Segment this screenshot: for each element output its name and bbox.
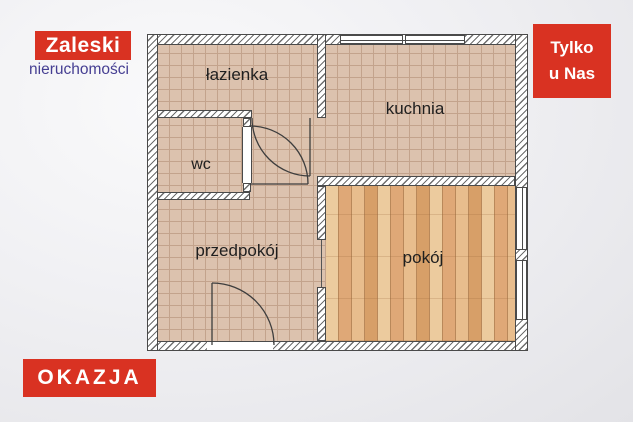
window-mullion [402, 35, 406, 44]
wall-przedpokoj-pokoj-upper [317, 186, 326, 240]
listing-graphic: Zaleski nieruchomości Tylko u Nas OKAZJA [0, 0, 633, 422]
room-label-przedpokoj: przedpokój [195, 241, 278, 261]
floor-plan: łazienka wc kuchnia przedpokój pokój [147, 34, 528, 351]
agency-logo: Zaleski [35, 31, 131, 60]
exclusive-badge-line2: u Nas [549, 61, 595, 87]
exclusive-badge: Tylko u Nas [533, 24, 611, 98]
wall-outer-top [147, 34, 528, 45]
wall-kuchnia-pokoj-divider [317, 176, 515, 186]
wall-outer-bottom [147, 341, 528, 351]
wall-wc-bottom [157, 192, 250, 200]
agency-subtitle: nieruchomości [18, 61, 140, 79]
pokoj-window-upper [516, 187, 527, 250]
exclusive-badge-line1: Tylko [550, 35, 593, 61]
room-label-pokoj: pokój [403, 248, 444, 268]
bargain-badge: OKAZJA [23, 359, 156, 397]
wall-wc-right-top-stub [243, 118, 251, 127]
wall-przedpokoj-pokoj-lower [317, 287, 326, 341]
wall-lazienka-bottom [157, 110, 252, 118]
agency-name: Zaleski [46, 34, 121, 58]
wall-lazienka-kuchnia-divider [317, 34, 326, 118]
entrance-door-opening [207, 341, 273, 351]
room-label-kuchnia: kuchnia [386, 99, 445, 119]
room-label-lazienka: łazienka [206, 65, 268, 85]
wc-door-opening [242, 127, 252, 183]
wall-wc-right-bottom-stub [243, 183, 251, 192]
pokoj-window-lower [516, 260, 527, 320]
room-label-wc: wc [191, 156, 211, 174]
kuchnia-top-window [340, 35, 465, 44]
